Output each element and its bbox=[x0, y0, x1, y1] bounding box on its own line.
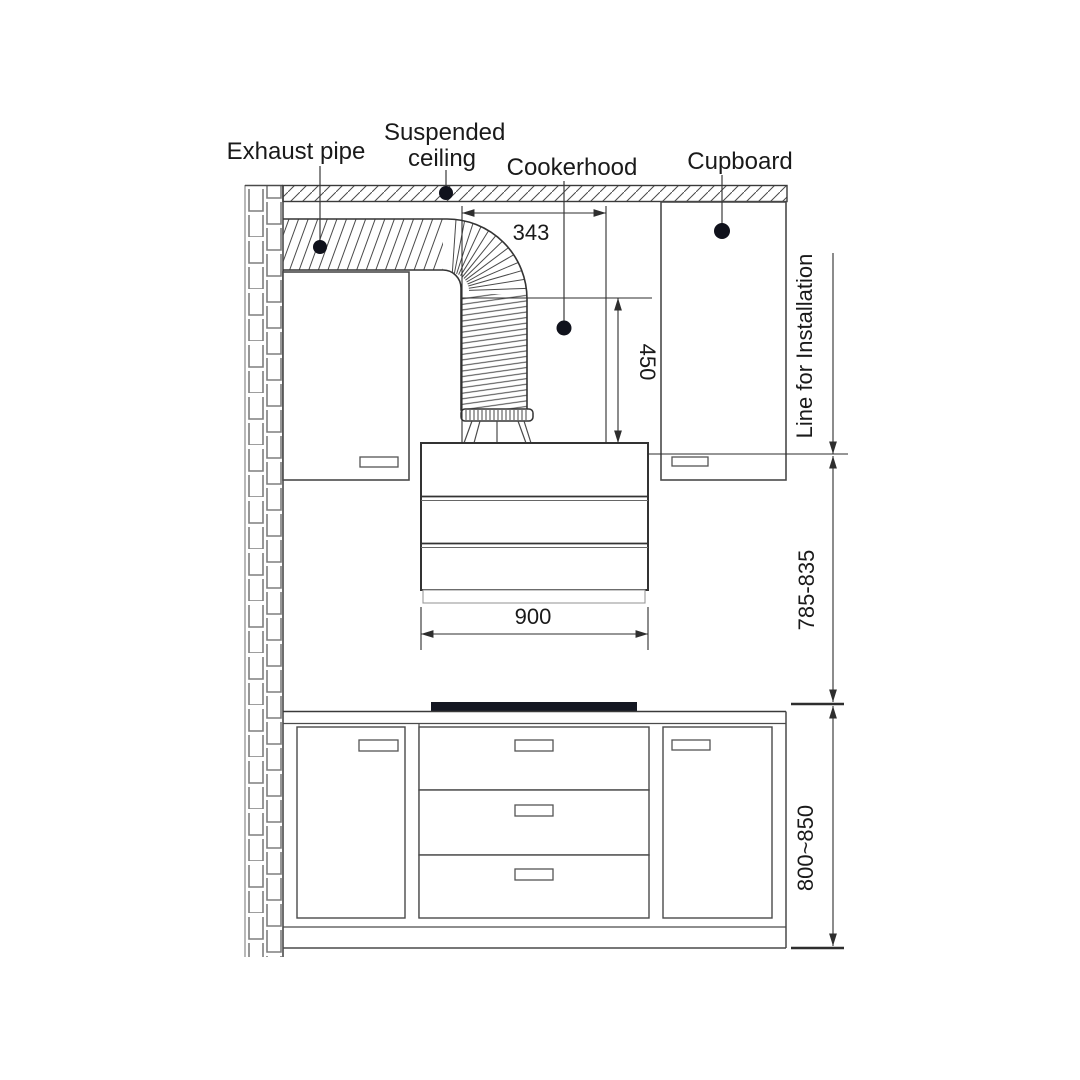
cupboard-right bbox=[661, 202, 786, 480]
door-left-handle bbox=[359, 740, 398, 751]
dimension-800-850: 800~850 bbox=[791, 706, 844, 948]
hood-bottom-lip bbox=[423, 590, 645, 603]
duct-horizontal-hatch bbox=[283, 219, 443, 270]
cabinet-door-right bbox=[663, 727, 772, 918]
cupboard-right-body bbox=[661, 202, 786, 480]
leader-dot bbox=[714, 223, 730, 239]
cookerhood bbox=[421, 443, 648, 603]
duct-funnel bbox=[464, 421, 531, 443]
drawer-3-handle bbox=[515, 869, 553, 880]
cabinet-door-left bbox=[297, 727, 405, 918]
installation-diagram-page: 343 450 900 Line for Installation 785-83… bbox=[0, 0, 1080, 1080]
cupboard-right-handle bbox=[672, 457, 708, 466]
dimension-785-835: 785-835 bbox=[791, 456, 844, 704]
callout-cupboard-label: Cupboard bbox=[687, 148, 792, 175]
cookerhood-body bbox=[421, 443, 648, 590]
base-cabinet bbox=[283, 702, 786, 948]
callout-suspended-ceiling-label: Suspended ceiling bbox=[384, 119, 512, 172]
dim-785-835-value: 785-835 bbox=[794, 550, 819, 631]
drawer-1-handle bbox=[515, 740, 553, 751]
brick-pattern bbox=[246, 185, 282, 957]
callout-cookerhood-label: Cookerhood bbox=[507, 154, 638, 181]
suspended-ceiling bbox=[283, 186, 787, 202]
leader-dot bbox=[557, 321, 572, 336]
dim-900-value: 900 bbox=[515, 604, 552, 629]
drawer-2 bbox=[419, 790, 649, 855]
cooktop bbox=[431, 702, 637, 712]
installation-diagram: 343 450 900 Line for Installation 785-83… bbox=[0, 0, 1080, 1080]
duct-vertical-hatch bbox=[461, 294, 527, 410]
dim-800-850-value: 800~850 bbox=[793, 805, 818, 891]
door-right-handle bbox=[672, 740, 710, 750]
ceiling-band bbox=[283, 186, 787, 202]
duct-collar bbox=[461, 409, 533, 421]
dimension-900: 900 bbox=[421, 604, 648, 650]
drawer-1 bbox=[419, 727, 649, 790]
installation-line-label: Line for Installation bbox=[792, 254, 817, 439]
cupboard-left bbox=[283, 272, 409, 480]
leader-dot bbox=[439, 186, 453, 200]
brick-wall bbox=[245, 185, 283, 957]
drawer-3 bbox=[419, 855, 649, 918]
dim-450-value: 450 bbox=[635, 344, 660, 381]
dim-343-value: 343 bbox=[513, 220, 550, 245]
callout-exhaust-pipe-label: Exhaust pipe bbox=[227, 138, 366, 165]
cupboard-left-handle bbox=[360, 457, 398, 467]
drawer-2-handle bbox=[515, 805, 553, 816]
cupboard-left-body bbox=[283, 272, 409, 480]
leader-dot bbox=[313, 240, 327, 254]
